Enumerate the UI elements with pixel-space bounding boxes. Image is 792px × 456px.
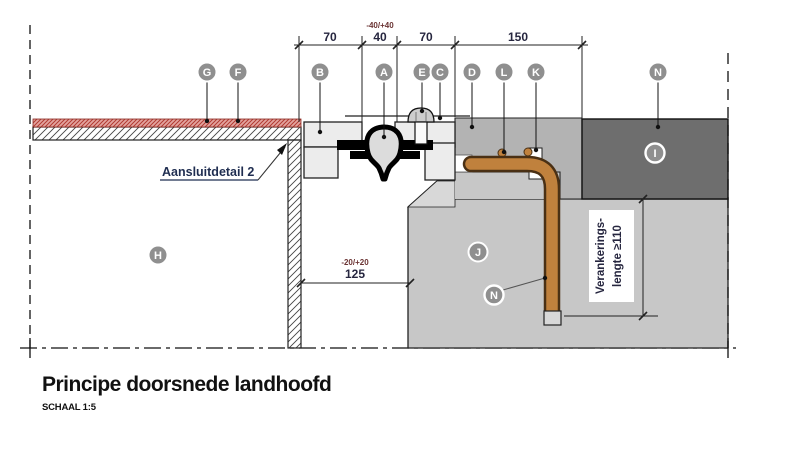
drawing-scale: SCHAAL 1:5 [42, 402, 97, 413]
svg-text:B: B [316, 67, 324, 79]
joint-block-left-lower [304, 147, 338, 178]
callout-j: J [469, 243, 488, 262]
dim-150: 150 [508, 30, 528, 44]
svg-text:D: D [468, 67, 476, 79]
svg-text:J: J [475, 247, 481, 259]
callout-h: H [149, 246, 168, 265]
callout-a: A [375, 63, 394, 82]
dim-70-right: 70 [419, 30, 433, 44]
bolt-shaft [415, 122, 427, 144]
waterproofing-layer [33, 119, 301, 127]
abutment-concrete-block [408, 181, 728, 348]
callout-n-top: N [649, 63, 668, 82]
detail-note: Aansluitdetail 2 [162, 165, 254, 179]
callout-l: L [495, 63, 514, 82]
dim-70-left: 70 [323, 30, 337, 44]
callout-g: G [198, 63, 217, 82]
svg-text:C: C [436, 67, 444, 79]
tolerance-top: -40/+40 [366, 21, 394, 30]
deck-joint-face [288, 140, 301, 348]
dim-125: 125 [345, 267, 365, 281]
callout-e: E [413, 63, 432, 82]
anchor-note-line2: lengte ≥110 [612, 225, 624, 287]
svg-text:K: K [532, 67, 540, 79]
callout-i: I [646, 144, 665, 163]
technical-drawing-page: 70 40 70 150 -40/+40 125 -20/+20 Veranke… [0, 0, 792, 456]
deck-hatched-layer [33, 127, 301, 140]
svg-text:E: E [418, 67, 425, 79]
callout-k: K [527, 63, 546, 82]
svg-text:N: N [654, 67, 662, 79]
svg-text:L: L [501, 67, 508, 79]
anchor-end-cap [544, 311, 561, 325]
callout-d: D [463, 63, 482, 82]
svg-text:A: A [380, 67, 388, 79]
callout-f: F [229, 63, 248, 82]
dim-40: 40 [373, 30, 387, 44]
anchor-weld-dot [524, 148, 532, 156]
svg-text:F: F [235, 67, 242, 79]
section-drawing: 70 40 70 150 -40/+40 125 -20/+20 Veranke… [0, 0, 792, 456]
svg-text:H: H [154, 250, 162, 262]
drawing-title: Principe doorsnede landhoofd [42, 373, 331, 396]
tolerance-gap: -20/+20 [341, 258, 369, 267]
svg-text:N: N [490, 290, 498, 302]
anchor-note-line1: Verankerings- [595, 218, 607, 294]
callout-n-bottom: N [485, 286, 504, 305]
svg-text:G: G [203, 67, 212, 79]
callout-b: B [311, 63, 330, 82]
callout-c: C [431, 63, 450, 82]
svg-text:I: I [653, 148, 656, 160]
